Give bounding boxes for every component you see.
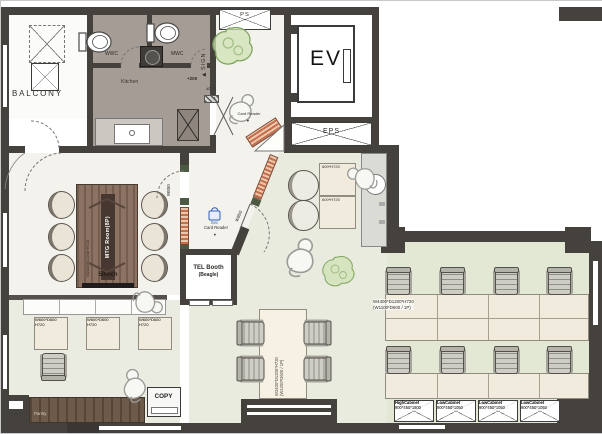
wall — [87, 7, 93, 153]
cabinet-dim: 900*450*1050 — [521, 406, 559, 411]
wall — [1, 146, 25, 153]
wall — [180, 153, 189, 165]
counter-divider — [131, 300, 132, 314]
small-desk: W600*D600 H720 — [86, 317, 120, 350]
office-chair — [304, 358, 330, 381]
card-reader-entry-label: Card Reader — [231, 112, 267, 116]
ps-label: PS — [219, 12, 271, 18]
counter-item — [379, 202, 385, 206]
cabinet-dim: 900*450*1800 — [395, 406, 433, 411]
lounge-table-dim: 600*H720 — [322, 198, 340, 202]
wall — [372, 7, 379, 153]
office-chair — [239, 358, 265, 381]
kitchen-faucet — [129, 130, 135, 136]
lounge-table: 600*H720 — [319, 196, 356, 229]
small-desk: W600*D600 H720 — [34, 317, 68, 350]
balcony-label: BALCONY — [12, 90, 86, 99]
washer-drum — [145, 50, 160, 65]
wall — [405, 231, 569, 242]
wall — [87, 146, 216, 153]
display-size-label: 50inch — [77, 272, 139, 279]
small-desk-h: H720 — [35, 323, 67, 328]
tel-booth-door — [212, 300, 233, 306]
meeting-chair — [141, 223, 168, 251]
washing-machine — [140, 46, 163, 67]
window — [247, 412, 331, 415]
mwc-label: MWC — [171, 52, 184, 58]
tel-booth-sub-label: (Beagle) — [182, 273, 235, 279]
desk-island — [385, 373, 589, 399]
window — [97, 426, 181, 430]
window — [3, 45, 7, 107]
office-chair — [387, 269, 410, 295]
step-hatch — [204, 95, 219, 103]
display-50inch — [82, 283, 134, 288]
window-bench — [241, 399, 337, 423]
desk-island-dim-line1: W4400*D1200*H720 — [373, 299, 414, 305]
wwc-label: WWC — [105, 52, 118, 58]
eps-label: EPS — [291, 128, 372, 136]
meeting-table: MTG Room(8P) W2400*D1200*H720 50inch — [76, 184, 138, 288]
desk-divider — [539, 374, 540, 398]
door-width-mtg-label: W850 — [167, 166, 172, 196]
pantry-label: Pantry — [34, 412, 46, 417]
small-desk-h: H720 — [87, 323, 119, 328]
cabinet-high: HighCabinet 900*450*1800 — [394, 400, 434, 422]
glass-partition — [180, 207, 189, 245]
floor-plan: MTG Room(8P) W2400*D1200*H720 50inch 600… — [0, 0, 602, 434]
office-chair — [441, 348, 464, 374]
door-jamb — [180, 165, 189, 172]
small-desk-h: H720 — [139, 323, 171, 328]
window — [247, 405, 331, 408]
window — [399, 425, 445, 429]
window — [3, 335, 7, 389]
wall — [93, 63, 121, 68]
copy-tray — [151, 407, 178, 414]
kitchen-label: Kitchen — [121, 80, 138, 86]
lounge-counter — [361, 153, 387, 247]
lounge-table-dim: 600*H720 — [322, 165, 340, 169]
level-up-label: +200 — [187, 77, 197, 82]
lounge-chair — [288, 200, 319, 231]
counter-divider — [95, 300, 96, 314]
office-chair — [495, 348, 518, 374]
desk-divider — [386, 318, 588, 319]
office-chair — [387, 348, 410, 374]
meeting-chair — [48, 254, 75, 282]
meeting-chair — [141, 191, 168, 219]
cabinet-low: LowCabinet 900*450*1050 — [436, 400, 476, 422]
pillar — [565, 227, 591, 253]
pillar — [557, 393, 602, 433]
desk-divider — [488, 374, 489, 398]
cabinet-dim: 900*450*1050 — [479, 406, 517, 411]
meeting-table-runner: MTG Room(8P) — [101, 194, 115, 280]
card-reader-inner-arrow: ▼ — [213, 233, 217, 237]
copy-label: COPY — [148, 394, 179, 401]
desk-island-dim-line2: (W1100*D600 / 1P) — [373, 305, 414, 311]
meeting-chair — [48, 191, 75, 219]
center-table: W2400*D1200*H720 (W1200*D600 / 1P) — [259, 309, 307, 399]
office-chair — [441, 269, 464, 295]
work-counter — [23, 299, 166, 315]
window — [9, 401, 23, 409]
card-reader-inner-label: Card Reader — [195, 226, 237, 231]
level-zero-label: ±0 — [206, 87, 211, 92]
wall — [1, 7, 379, 15]
lounge-table: 600*H720 — [319, 163, 356, 196]
tel-booth-label: TEL Booth — [182, 265, 235, 272]
center-table-per-seat: (W1200*D600 / 1P) — [279, 314, 284, 396]
tel-booth-door — [189, 300, 210, 306]
kitchen-shaft — [177, 109, 199, 141]
counter-divider — [59, 300, 60, 314]
desk-divider — [437, 374, 438, 398]
office-chair — [548, 348, 571, 374]
balcony-unit — [31, 63, 59, 91]
office-chair — [239, 322, 265, 345]
counter-item — [379, 220, 385, 224]
wall — [59, 146, 93, 153]
pantry-counter: Pantry — [29, 397, 145, 423]
small-desk: W600*D600 H720 — [138, 317, 172, 350]
wall — [284, 145, 399, 153]
ev-label: EV — [295, 47, 357, 70]
meeting-chair — [48, 223, 75, 251]
desk-island-dim: W4400*D1200*H720 (W1100*D600 / 1P) — [373, 299, 414, 310]
sign-arrow: ◀ — [202, 73, 206, 79]
sign-label: SIGN — [201, 38, 207, 70]
office-chair — [548, 269, 571, 295]
meeting-chair — [141, 254, 168, 282]
desk-island — [385, 294, 589, 341]
wall — [559, 7, 602, 21]
cabinet-low: LowCabinet 900*450*1050 — [520, 400, 560, 422]
mtg-room-label: MTG Room(8P) — [105, 216, 111, 258]
balcony-unit-dashed — [29, 25, 65, 63]
mtg-table-dim-label: W2400*D1200*H720 — [85, 197, 90, 277]
counter-plate — [365, 174, 386, 195]
office-chair — [42, 353, 65, 379]
cabinet-low: LowCabinet 900*450*1050 — [478, 400, 518, 422]
window — [3, 213, 7, 267]
office-chair — [495, 269, 518, 295]
kitchen-counter — [95, 118, 163, 146]
copy-machine: COPY — [147, 387, 181, 417]
door-jamb — [180, 198, 189, 205]
window — [593, 261, 598, 325]
lounge-chair — [288, 170, 319, 201]
cabinet-dim: 900*450*1050 — [437, 406, 475, 411]
card-reader-entry-arrow: ▼ — [246, 119, 250, 123]
office-chair — [304, 322, 330, 345]
